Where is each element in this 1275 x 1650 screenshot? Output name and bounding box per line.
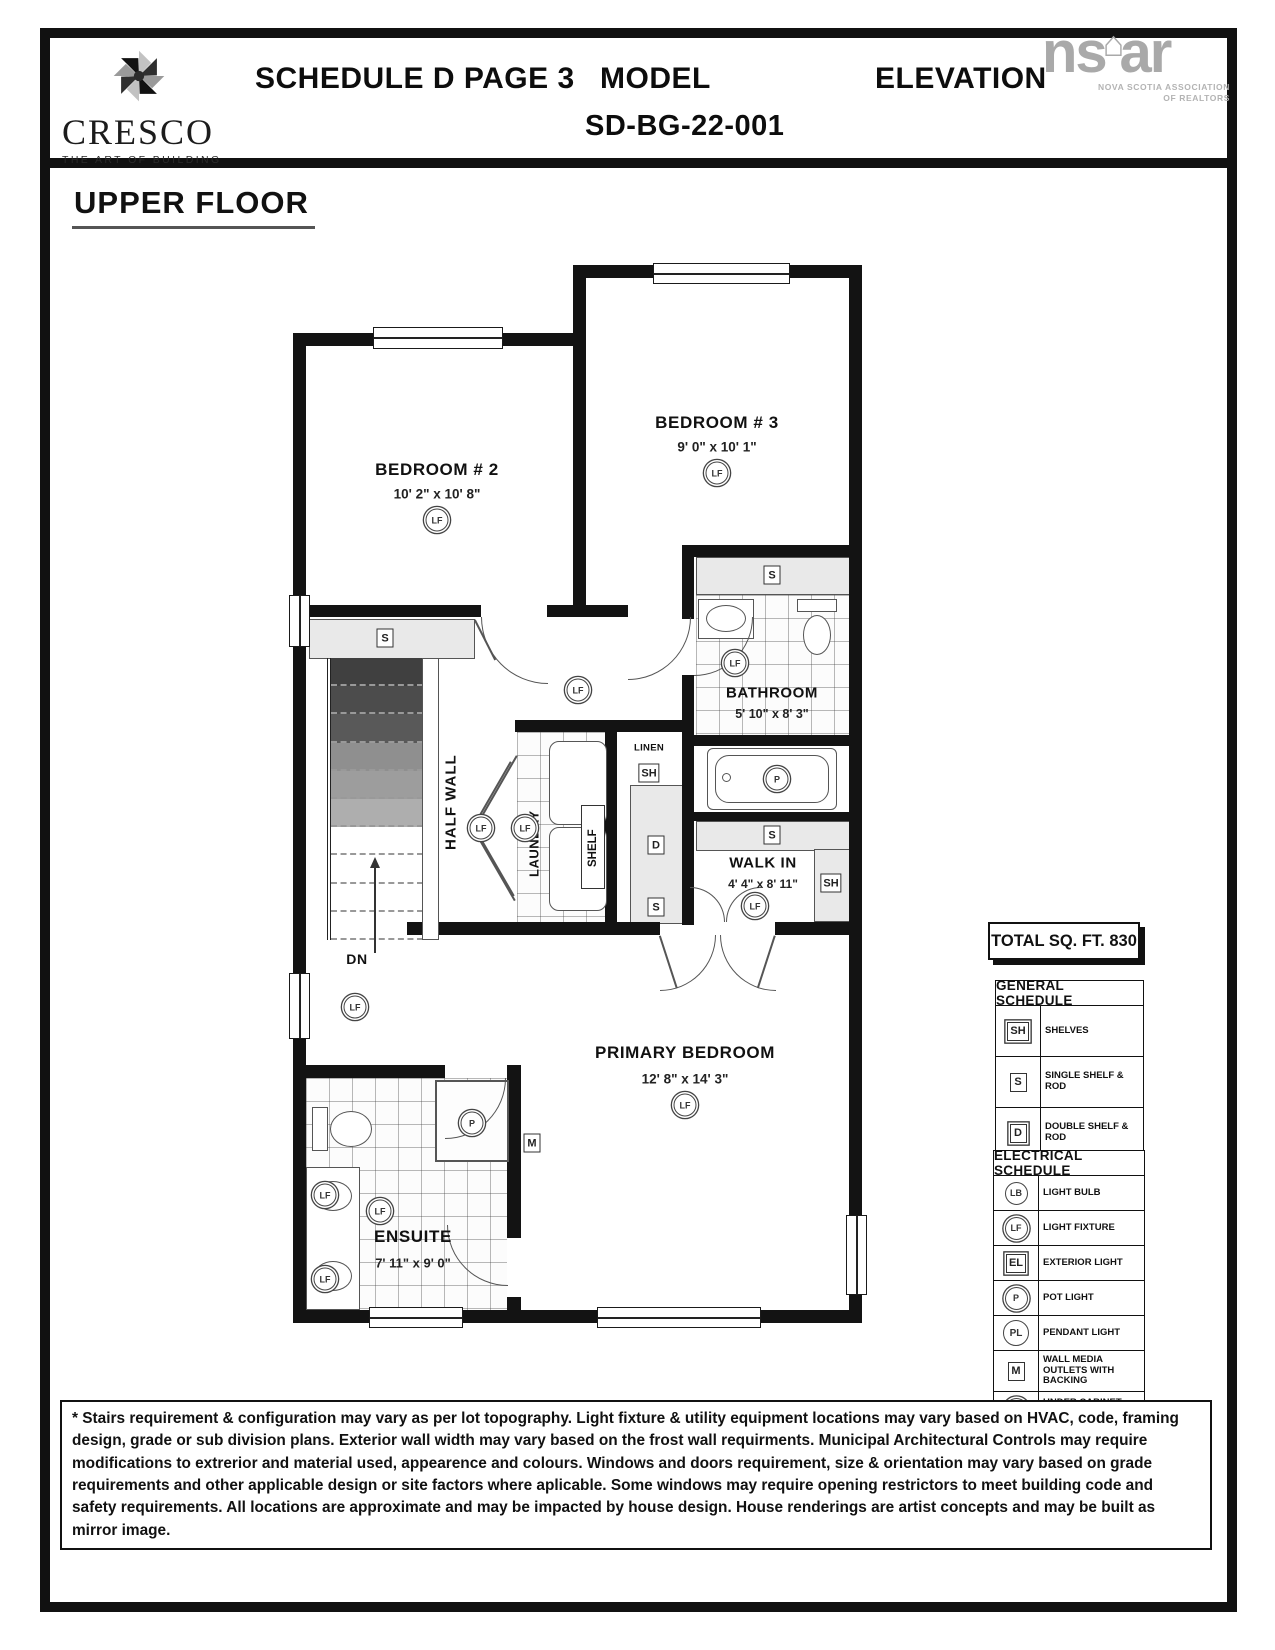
wall: [507, 1065, 521, 1238]
cresco-logo: CRESCO THE ART OF BUILDING: [62, 46, 232, 166]
door-swing: [628, 617, 691, 680]
cresco-pinwheel-icon: [108, 46, 170, 106]
media-outlet-symbol: M: [524, 1134, 541, 1153]
single-shelf-rod-symbol: S: [764, 826, 781, 845]
label-cell: PENDANT LIGHT: [1039, 1316, 1144, 1350]
light-fixture-symbol: LF: [567, 679, 590, 702]
wall: [515, 720, 694, 732]
toilet-bowl: [330, 1111, 372, 1147]
exterior-light-symbol: EL: [1006, 1254, 1026, 1273]
window: [373, 327, 503, 349]
schedule-title: SCHEDULE D PAGE 3: [255, 62, 575, 96]
electrical-schedule: ELECTRICAL SCHEDULE LB LIGHT BULB LF LIG…: [993, 1150, 1145, 1427]
window: [289, 595, 310, 647]
walkin-dims: 4' 4" x 8' 11": [728, 877, 798, 891]
window: [846, 1215, 867, 1295]
label-cell: WALL MEDIA OUTLETS WITH BACKING: [1039, 1351, 1144, 1391]
border-bottom: [40, 1602, 1237, 1612]
nsar-logo: ns⌂ar NOVA SCOTIA ASSOCIATION OF REALTOR…: [1042, 24, 1254, 105]
single-shelf-rod-symbol: S: [377, 629, 394, 648]
floor-plan: HALF WALL DN LAUNDRY SHELF LINEN SH D S …: [285, 265, 877, 1333]
light-fixture-symbol: LF: [344, 996, 367, 1019]
pendant-light-symbol: PL: [1003, 1320, 1029, 1346]
light-fixture-symbol: LF: [314, 1184, 337, 1207]
single-shelf-rod-symbol: S: [1010, 1073, 1027, 1092]
door-swing: [481, 617, 548, 684]
general-schedule-title: GENERAL SCHEDULE: [996, 981, 1143, 1006]
symbol-cell: SH: [996, 1006, 1041, 1056]
light-fixture-symbol: LF: [744, 895, 767, 918]
model-label: MODEL: [600, 62, 711, 96]
schedule-row: M WALL MEDIA OUTLETS WITH BACKING: [994, 1351, 1144, 1392]
light-fixture-symbol: LF: [426, 509, 449, 532]
light-fixture-symbol: LF: [514, 817, 537, 840]
wall: [293, 333, 306, 1323]
single-shelf-rod-symbol: S: [764, 566, 781, 585]
double-shelf-rod-symbol: D: [1010, 1124, 1027, 1143]
wall: [293, 1065, 445, 1078]
label-cell: EXTERIOR LIGHT: [1039, 1246, 1144, 1280]
schedule-row: LF LIGHT FIXTURE: [994, 1211, 1144, 1246]
stair-arrow-head: [370, 857, 380, 868]
brand-name: CRESCO: [62, 111, 232, 153]
tub-drain: [722, 773, 731, 782]
general-schedule: GENERAL SCHEDULE SH SHELVES S SINGLE SHE…: [995, 980, 1144, 1159]
window: [369, 1307, 463, 1328]
light-fixture-symbol: LF: [1005, 1217, 1028, 1240]
window: [597, 1307, 761, 1328]
model-code: SD-BG-22-001: [585, 110, 784, 143]
stair-arrow-shaft: [374, 867, 376, 953]
pot-light-symbol: P: [1005, 1287, 1028, 1310]
border-left: [40, 28, 50, 1612]
elevation-label: ELEVATION: [875, 62, 1047, 96]
bathroom-label: BATHROOM: [726, 685, 818, 702]
symbol-cell: LB: [994, 1176, 1039, 1210]
label-cell: SINGLE SHELF & ROD: [1041, 1057, 1143, 1107]
primary-bedroom-label: PRIMARY BEDROOM: [595, 1043, 775, 1063]
nsar-mark: ns⌂ar: [1042, 24, 1254, 82]
linen-label: LINEN: [634, 743, 664, 754]
label-cell: POT LIGHT: [1039, 1281, 1144, 1315]
walkin-label: WALK IN: [729, 855, 797, 872]
stair-direction-label: DN: [346, 951, 367, 967]
pot-light-symbol: P: [461, 1112, 484, 1135]
wall: [407, 922, 660, 935]
laundry-label: LAUNDRY: [525, 785, 543, 903]
light-fixture-symbol: LF: [724, 652, 747, 675]
schedule-row: PL PENDANT LIGHT: [994, 1316, 1144, 1351]
wall: [694, 735, 849, 746]
pot-light-symbol: P: [766, 768, 789, 791]
shelves-symbol: SH: [1007, 1022, 1028, 1041]
symbol-cell: LF: [994, 1211, 1039, 1245]
wall: [547, 605, 573, 617]
wall: [507, 1297, 521, 1310]
bedroom3-dims: 9' 0" x 10' 1": [677, 440, 756, 455]
schedule-row: S SINGLE SHELF & ROD: [996, 1057, 1143, 1108]
window: [653, 263, 790, 284]
ensuite-label: ENSUITE: [374, 1227, 452, 1247]
schedule-row: P POT LIGHT: [994, 1281, 1144, 1316]
window: [289, 973, 310, 1039]
nsar-ns: ns: [1042, 20, 1106, 85]
bedroom2-dims: 10' 2" x 10' 8": [394, 487, 481, 502]
door-swing: [690, 887, 725, 922]
bifold-door-line: [476, 831, 514, 896]
schedule-row: LB LIGHT BULB: [994, 1176, 1144, 1211]
toilet-tank: [797, 599, 837, 612]
wall: [849, 265, 862, 1323]
half-wall: [422, 658, 439, 940]
half-wall-label: HALF WALL: [441, 710, 461, 895]
single-shelf-rod-symbol: S: [648, 898, 665, 917]
symbol-cell: PL: [994, 1316, 1039, 1350]
light-fixture-symbol: LF: [470, 817, 493, 840]
toilet-bowl: [803, 615, 831, 655]
wall: [694, 812, 849, 821]
light-fixture-symbol: LF: [369, 1200, 392, 1223]
wall: [573, 605, 628, 617]
symbol-cell: M: [994, 1351, 1039, 1391]
wall: [775, 922, 862, 935]
door-swing: [720, 935, 776, 991]
brand-tagline: THE ART OF BUILDING: [62, 154, 232, 166]
wall: [573, 346, 586, 605]
wall: [694, 545, 849, 557]
shelf-label: SHELF: [584, 806, 602, 890]
shelves-symbol: SH: [638, 764, 659, 783]
bedroom3-label: BEDROOM # 3: [655, 413, 779, 433]
label-cell: LIGHT BULB: [1039, 1176, 1144, 1210]
border-right: [1227, 28, 1237, 1612]
bedroom2-label: BEDROOM # 2: [375, 460, 499, 480]
symbol-cell: EL: [994, 1246, 1039, 1280]
schedule-row: EL EXTERIOR LIGHT: [994, 1246, 1144, 1281]
shelves-symbol: SH: [820, 874, 841, 893]
shelf-box: SHELF: [581, 805, 605, 889]
light-bulb-symbol: LB: [1005, 1182, 1028, 1205]
light-fixture-symbol: LF: [314, 1268, 337, 1291]
plan-sheet: CRESCO THE ART OF BUILDING SCHEDULE D PA…: [0, 0, 1275, 1650]
primary-bedroom-dims: 12' 8" x 14' 3": [642, 1072, 729, 1087]
wall: [682, 545, 694, 619]
schedule-row: SH SHELVES: [996, 1006, 1143, 1057]
electrical-schedule-title: ELECTRICAL SCHEDULE: [994, 1151, 1144, 1176]
media-outlet-symbol: M: [1008, 1362, 1025, 1381]
nsar-line2: OF REALTORS: [1042, 93, 1230, 104]
ensuite-dims: 7' 11" x 9' 0": [375, 1256, 451, 1271]
total-area-box: TOTAL SQ. FT. 830: [988, 922, 1140, 960]
bathroom-dims: 5' 10" x 8' 3": [735, 707, 808, 721]
symbol-cell: S: [996, 1057, 1041, 1107]
toilet-tank: [312, 1107, 328, 1151]
light-fixture-symbol: LF: [706, 462, 729, 485]
disclaimer-note: * Stairs requirement & configuration may…: [60, 1400, 1212, 1550]
page-title: UPPER FLOOR: [72, 185, 315, 229]
wall: [306, 605, 481, 617]
label-cell: LIGHT FIXTURE: [1039, 1211, 1144, 1245]
light-fixture-symbol: LF: [674, 1094, 697, 1117]
nsar-ar: ar: [1119, 20, 1170, 85]
double-shelf-rod-symbol: D: [648, 836, 665, 855]
symbol-cell: P: [994, 1281, 1039, 1315]
label-cell: SHELVES: [1041, 1006, 1143, 1056]
